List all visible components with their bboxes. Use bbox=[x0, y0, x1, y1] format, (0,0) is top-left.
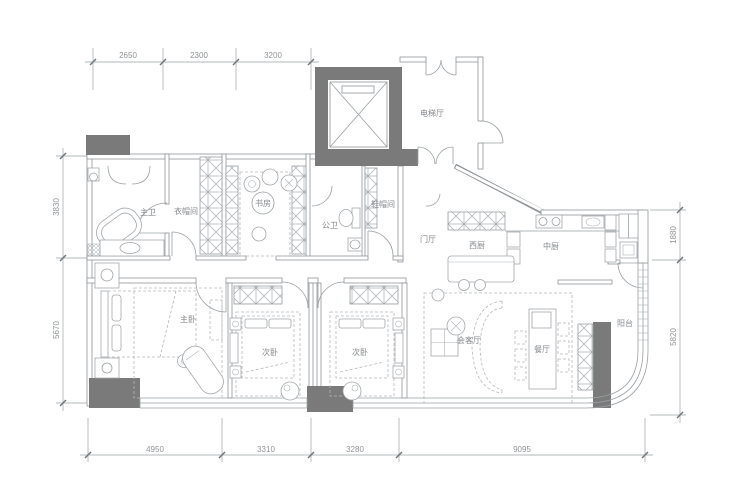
label-master-bedroom: 主卧 bbox=[180, 314, 196, 324]
bedroom2-door bbox=[282, 282, 308, 308]
shower-stall-door bbox=[108, 166, 126, 184]
dim-bottom-2: 3310 bbox=[257, 445, 275, 454]
label-balcony: 阳台 bbox=[617, 318, 633, 328]
dim-bottom-4: 9095 bbox=[513, 445, 531, 454]
stool-icon bbox=[475, 280, 486, 291]
dimension-bottom: 4950 3310 3280 9095 bbox=[80, 418, 653, 462]
cloak-room-door bbox=[368, 231, 393, 256]
chair-icon bbox=[281, 382, 299, 400]
nightstand bbox=[95, 263, 119, 288]
bench bbox=[395, 333, 403, 363]
study-bookshelf-left bbox=[226, 166, 238, 254]
hall-side-door bbox=[481, 121, 503, 143]
oven-stack bbox=[605, 215, 616, 230]
nightstand bbox=[393, 318, 404, 330]
label-master-bath: 主卫 bbox=[140, 207, 156, 217]
dim-left-1: 3830 bbox=[52, 198, 61, 216]
dim-top-3: 3200 bbox=[264, 51, 282, 60]
chaise-lounge-icon bbox=[178, 342, 227, 398]
oven-stack bbox=[605, 232, 616, 247]
floor-plan: 2650 2300 3200 3830 5670 1880 5820 bbox=[0, 0, 740, 485]
dimension-right: 1880 5820 bbox=[650, 202, 686, 423]
closet-door bbox=[172, 232, 196, 256]
oven-stack bbox=[605, 249, 616, 262]
label-study: 书房 bbox=[255, 198, 271, 208]
armchair-icon bbox=[244, 176, 260, 192]
bedroom3-door bbox=[318, 282, 344, 308]
label-dining-room: 餐厅 bbox=[534, 345, 550, 354]
dining-chair bbox=[558, 323, 569, 336]
elevator-shaft bbox=[315, 67, 418, 166]
dimension-top: 2650 2300 3200 bbox=[85, 48, 319, 90]
nightstand bbox=[230, 366, 241, 378]
label-chinese-kitchen: 中厨 bbox=[543, 241, 559, 251]
label-closet: 衣帽间 bbox=[174, 206, 198, 216]
nightstand bbox=[95, 358, 119, 378]
label-cloak-room: 鞋帽间 bbox=[371, 199, 395, 209]
dim-bottom-1: 4950 bbox=[146, 445, 164, 454]
stool-icon bbox=[459, 280, 470, 291]
dishwasher-icon bbox=[620, 242, 637, 258]
pillow-icon bbox=[245, 319, 267, 328]
master-bedroom-door bbox=[196, 282, 226, 312]
table-setting bbox=[532, 312, 551, 328]
tv-icon bbox=[210, 300, 222, 340]
pillow-icon bbox=[112, 295, 121, 321]
shower-floor bbox=[88, 244, 100, 256]
elevator-door-sill bbox=[342, 86, 374, 93]
chair-icon bbox=[252, 227, 266, 241]
dining-chair bbox=[515, 349, 526, 362]
column-top-left bbox=[86, 135, 130, 155]
toilet-bowl-icon bbox=[339, 210, 353, 227]
armchair-icon bbox=[262, 169, 278, 185]
wc-stall-door bbox=[132, 166, 150, 184]
label-bedroom-2: 次卧 bbox=[262, 347, 278, 357]
basin-icon bbox=[350, 240, 360, 249]
headboard bbox=[101, 291, 108, 357]
dim-right-2: 5820 bbox=[669, 328, 678, 346]
island-counter bbox=[448, 256, 514, 282]
pillow-icon bbox=[363, 319, 385, 328]
foyer-door bbox=[426, 194, 440, 206]
dim-right-1: 1880 bbox=[669, 226, 678, 244]
stove-icon bbox=[536, 215, 562, 228]
dining-chair bbox=[515, 367, 526, 380]
entry-double-door bbox=[418, 147, 453, 164]
dimension-left: 3830 5670 bbox=[52, 148, 90, 411]
label-elevator-hall: 电梯厅 bbox=[420, 108, 444, 118]
tall-cabinet bbox=[507, 232, 520, 247]
label-foyer: 门厅 bbox=[420, 234, 436, 244]
label-west-kitchen: 西厨 bbox=[469, 241, 485, 250]
dim-top-1: 2650 bbox=[119, 51, 137, 60]
floor-plan-drawing: 2650 2300 3200 3830 5670 1880 5820 bbox=[0, 0, 740, 485]
public-bath-fixtures bbox=[339, 208, 362, 251]
hall-top-double-door bbox=[426, 59, 456, 75]
bench bbox=[230, 333, 238, 363]
pillow-icon bbox=[269, 319, 291, 328]
dim-bottom-3: 3280 bbox=[346, 445, 364, 454]
closet-wardrobe bbox=[200, 157, 222, 254]
nightstand bbox=[393, 366, 404, 378]
dining-chair bbox=[558, 341, 569, 354]
chair-icon bbox=[343, 382, 361, 400]
study-furniture bbox=[240, 169, 297, 256]
dim-top-2: 2300 bbox=[190, 51, 208, 60]
pillow-icon bbox=[112, 325, 121, 351]
bedroom2-wardrobe bbox=[234, 286, 282, 304]
label-bedroom-3: 次卧 bbox=[352, 347, 368, 357]
label-living-room: 会客厅 bbox=[457, 335, 481, 345]
window-band-left bbox=[140, 398, 307, 408]
foyer-cabinet bbox=[448, 212, 505, 230]
living-tv-cabinet bbox=[578, 324, 593, 390]
sofa-icon bbox=[472, 301, 502, 393]
bedroom3-wardrobe bbox=[350, 286, 398, 304]
sink-basin-icon bbox=[120, 243, 140, 254]
side-table-icon bbox=[432, 289, 444, 301]
label-public-bath: 公卫 bbox=[322, 221, 338, 230]
dim-left-2: 5670 bbox=[52, 321, 61, 339]
pillow-icon bbox=[339, 319, 361, 328]
column-bottom-left bbox=[89, 378, 140, 408]
nightstand bbox=[230, 318, 241, 330]
dining-chair bbox=[558, 359, 569, 372]
cloak-cabinet bbox=[365, 168, 377, 228]
dining-chair bbox=[515, 331, 526, 344]
public-bath-door bbox=[312, 186, 332, 206]
